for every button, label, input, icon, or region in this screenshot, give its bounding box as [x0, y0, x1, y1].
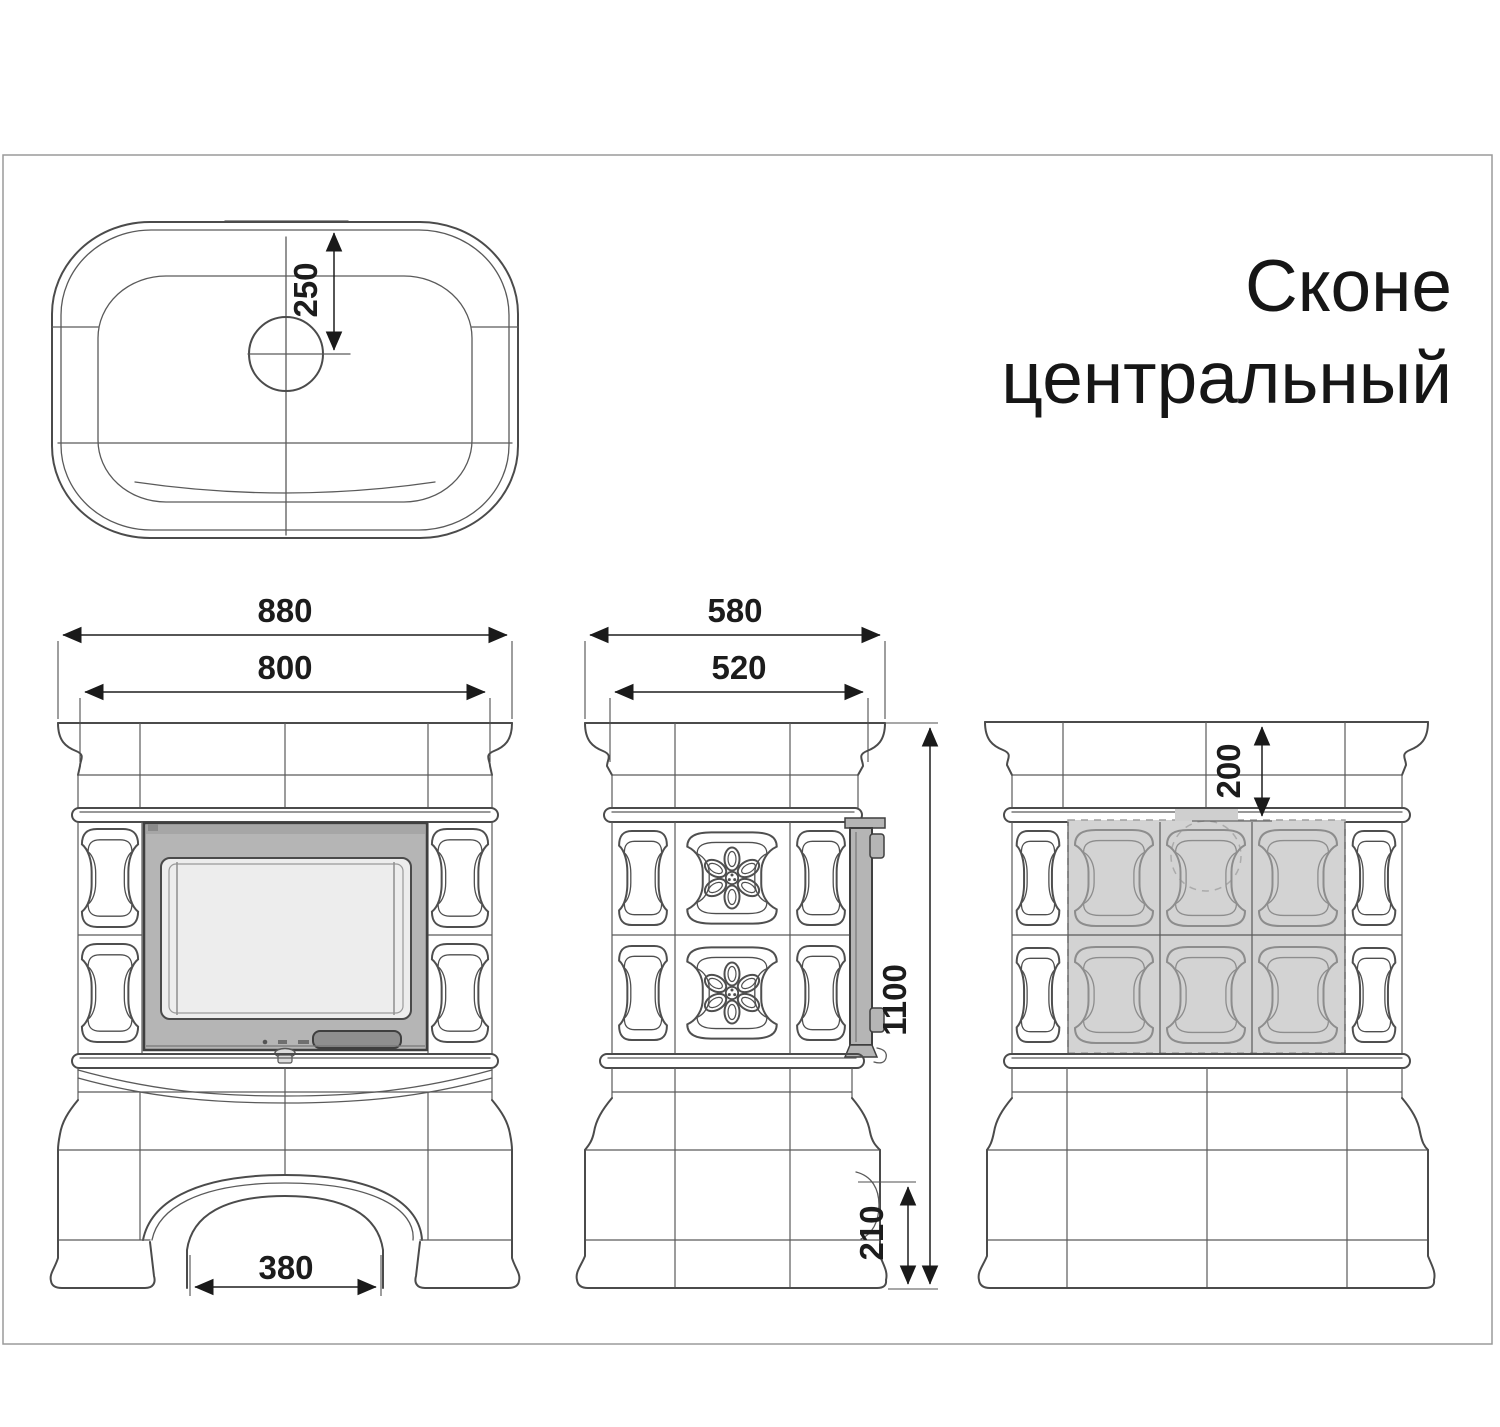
ash-knob-base — [278, 1055, 292, 1063]
dim-rear-200: 200 — [1192, 727, 1272, 821]
plan-view: 250 — [52, 221, 518, 538]
dim-side-1100: 1100 — [876, 723, 938, 1289]
door-bar — [850, 828, 872, 1045]
dim-front-380: 380 — [190, 1249, 381, 1296]
door-hinge — [870, 834, 884, 858]
title-block: Сконе центральный — [1001, 246, 1452, 419]
dim-label-1100: 1100 — [876, 964, 913, 1036]
dim-side-520: 520 — [610, 649, 868, 762]
door-glass — [161, 858, 411, 1019]
dim-plan-250: 250 — [287, 233, 334, 350]
dim-label-800: 800 — [257, 649, 312, 686]
door-top-band — [146, 825, 425, 834]
dim-label-210: 210 — [853, 1205, 890, 1260]
page-title-line1: Сконе — [1245, 246, 1452, 327]
dim-label-200: 200 — [1210, 743, 1247, 798]
chimney-tab — [1175, 809, 1238, 821]
page-title-line2: центральный — [1001, 338, 1452, 419]
fire-door — [144, 823, 427, 1050]
dim-label-580: 580 — [707, 592, 762, 629]
side-view: 580 520 — [577, 592, 938, 1289]
dim-label-250: 250 — [287, 262, 324, 317]
dim-label-520: 520 — [711, 649, 766, 686]
dim-label-880: 880 — [257, 592, 312, 629]
stove-drawing-page: Сконе центральный 250 880 — [0, 0, 1500, 1427]
door-top-cap — [845, 818, 885, 828]
sheet-border — [3, 155, 1492, 1344]
flower-tile — [687, 947, 776, 1038]
flower-tile — [687, 832, 776, 923]
rear-view: 200 — [979, 722, 1435, 1288]
dim-label-380: 380 — [258, 1249, 313, 1286]
front-view: 880 800 — [51, 592, 520, 1296]
door-hinge-notch — [148, 824, 158, 831]
shaded-zone — [1068, 820, 1345, 1053]
door-vent-slot — [298, 1040, 309, 1044]
door-vent-dot — [263, 1040, 268, 1045]
door-vent-slot — [278, 1040, 287, 1044]
drawing-canvas: Сконе центральный 250 880 — [0, 0, 1500, 1427]
